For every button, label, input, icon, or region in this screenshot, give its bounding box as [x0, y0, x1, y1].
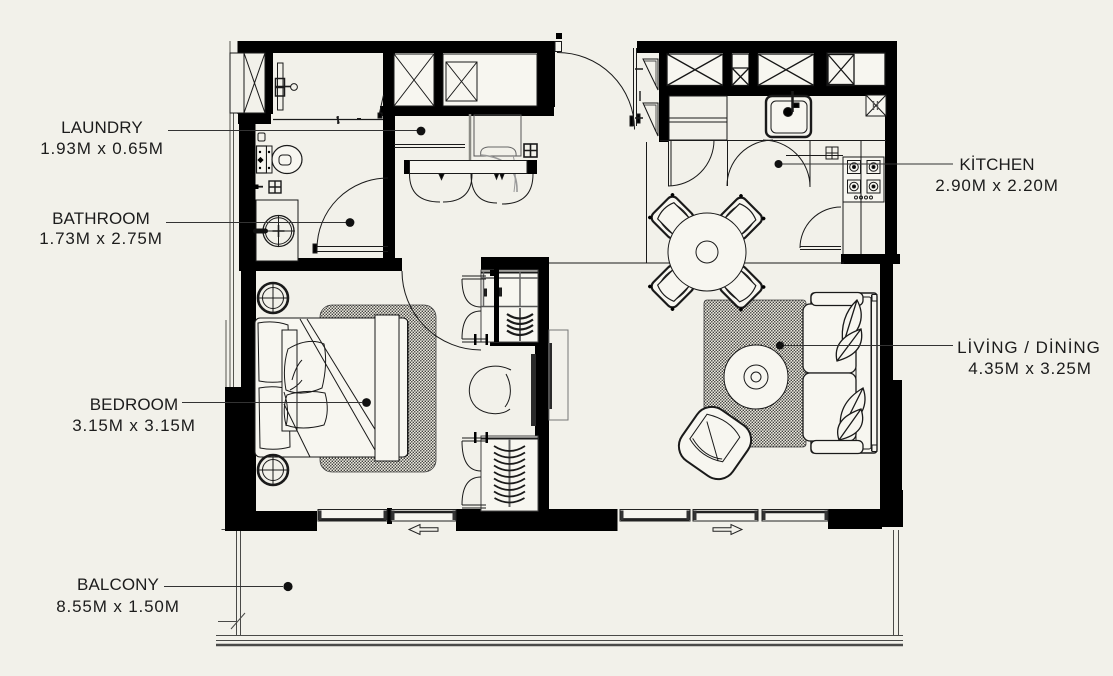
- svg-text:LİVİNG / DİNİNG: LİVİNG / DİNİNG: [957, 338, 1101, 357]
- svg-text:BEDROOM: BEDROOM: [90, 395, 179, 414]
- svg-text:LAUNDRY: LAUNDRY: [61, 118, 143, 137]
- svg-text:KİTCHEN: KİTCHEN: [959, 155, 1034, 174]
- svg-text:1.73M x 2.75M: 1.73M x 2.75M: [39, 229, 163, 248]
- svg-text:BATHROOM: BATHROOM: [52, 209, 150, 228]
- svg-text:1.93M x 0.65M: 1.93M x 0.65M: [40, 139, 164, 158]
- svg-text:8.55M x 1.50M: 8.55M x 1.50M: [56, 597, 180, 616]
- svg-text:BALCONY: BALCONY: [77, 575, 159, 594]
- svg-text:3.15M x 3.15M: 3.15M x 3.15M: [72, 416, 196, 435]
- svg-text:4.35M x 3.25M: 4.35M x 3.25M: [968, 359, 1092, 378]
- svg-text:2.90M x 2.20M: 2.90M x 2.20M: [935, 176, 1059, 195]
